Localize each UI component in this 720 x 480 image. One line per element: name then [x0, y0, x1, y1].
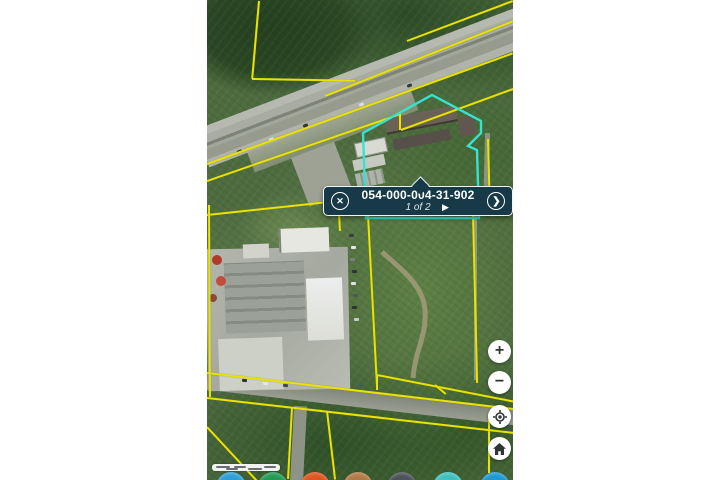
- parcel-popup: ✕ 054-000-004-31-902 1 of 2 ▶ ❯: [323, 186, 513, 216]
- chevron-right-icon[interactable]: ❯: [487, 192, 505, 210]
- home-button[interactable]: [488, 437, 511, 460]
- close-icon[interactable]: ✕: [331, 192, 349, 210]
- home-icon: [493, 443, 506, 455]
- minus-icon: −: [495, 374, 504, 390]
- zoom-in-button[interactable]: +: [488, 340, 511, 363]
- map-canvas[interactable]: ✕ 054-000-004-31-902 1 of 2 ▶ ❯ + −: [207, 0, 513, 480]
- locate-button[interactable]: [488, 405, 511, 428]
- app-window: ✕ 054-000-004-31-902 1 of 2 ▶ ❯ + −: [0, 0, 720, 480]
- selected-parcel-outline[interactable]: [207, 0, 513, 480]
- popup-pagination: 1 of 2 ▶: [355, 203, 481, 214]
- zoom-out-button[interactable]: −: [488, 371, 511, 394]
- pagination-label: 1 of 2: [405, 202, 430, 213]
- plus-icon: +: [495, 343, 504, 359]
- play-icon[interactable]: ▶: [442, 203, 449, 212]
- locate-icon: [493, 410, 507, 424]
- scale-bar: [212, 464, 280, 471]
